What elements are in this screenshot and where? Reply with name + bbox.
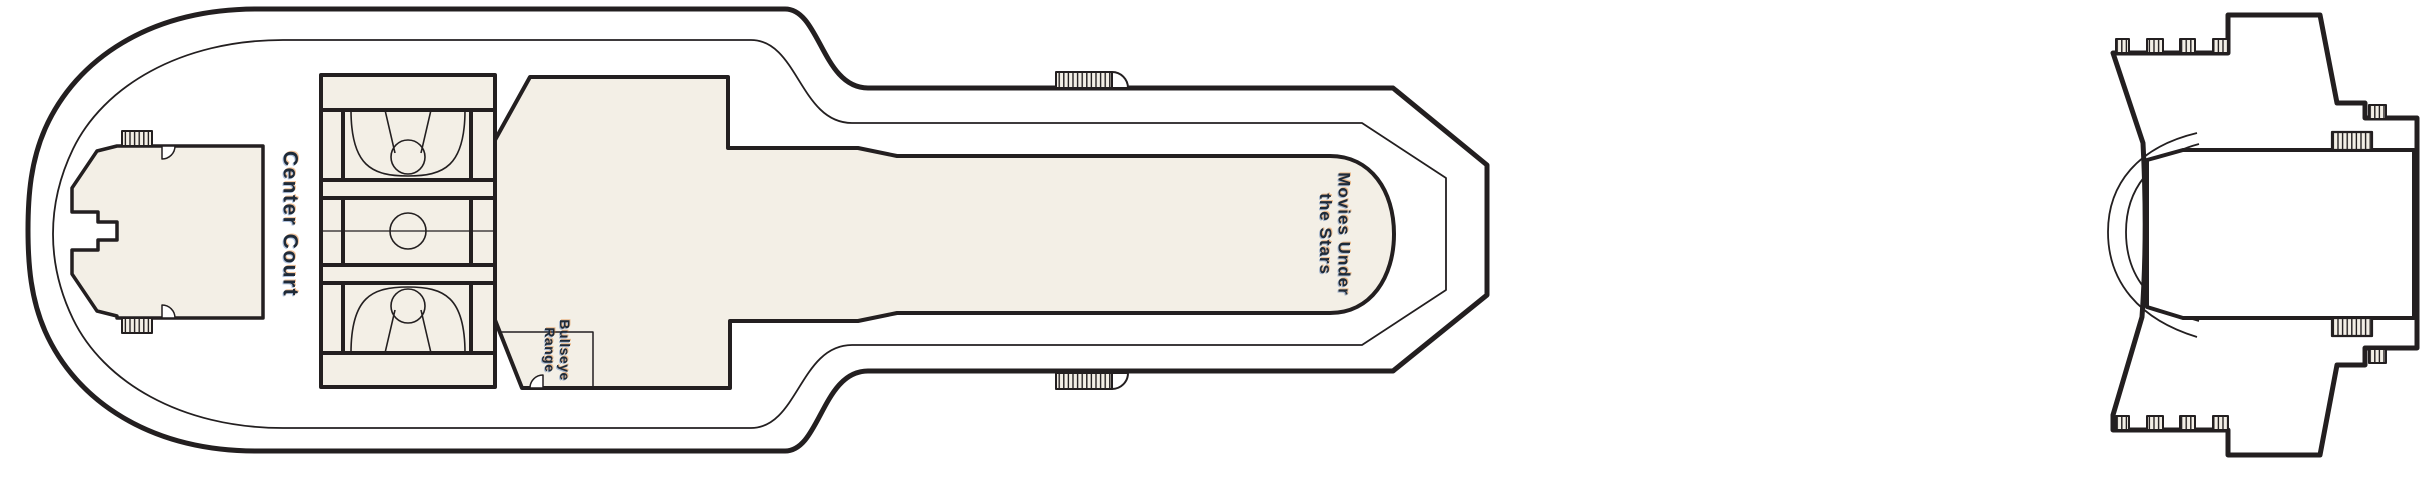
stairs-icon xyxy=(2369,349,2386,363)
stairs-icon xyxy=(2332,318,2372,336)
stairs-icon xyxy=(2332,132,2372,150)
stairs-icon xyxy=(2116,416,2129,430)
movies-label-line1: Movies Under xyxy=(1334,172,1353,295)
stairs-icon xyxy=(2180,39,2195,53)
stairs-icon xyxy=(2147,39,2163,53)
deck-plan-drawing xyxy=(0,0,2435,478)
movies-under-the-stars-label: Movies Under the Stars xyxy=(1316,172,1353,295)
aft-deck-area xyxy=(2147,150,2414,318)
stairs-icon xyxy=(122,131,152,146)
deck-plan-canvas: Center Court Bullseye Range Movies Under… xyxy=(0,0,2435,478)
stairs-icon xyxy=(1056,72,1112,88)
stairs-icon xyxy=(2213,39,2228,53)
stairs-icon xyxy=(122,318,152,333)
bullseye-range-label: Bullseye Range xyxy=(542,319,572,381)
stairs-ramp-icon xyxy=(1112,72,1128,88)
stairs-icon xyxy=(2213,416,2228,430)
stairs-icon xyxy=(2116,39,2129,53)
stairs-icon xyxy=(2147,416,2163,430)
bullseye-range-label-line1: Bullseye xyxy=(557,319,573,381)
center-court-label: Center Court xyxy=(278,151,301,297)
stairs-icon xyxy=(2369,105,2386,119)
stairs-icon xyxy=(2180,416,2195,430)
stairs-ramp-icon xyxy=(1112,373,1128,389)
movies-label-line2: the Stars xyxy=(1316,193,1335,275)
stairs-icon xyxy=(1056,373,1112,389)
bullseye-range-label-line2: Range xyxy=(542,327,558,372)
